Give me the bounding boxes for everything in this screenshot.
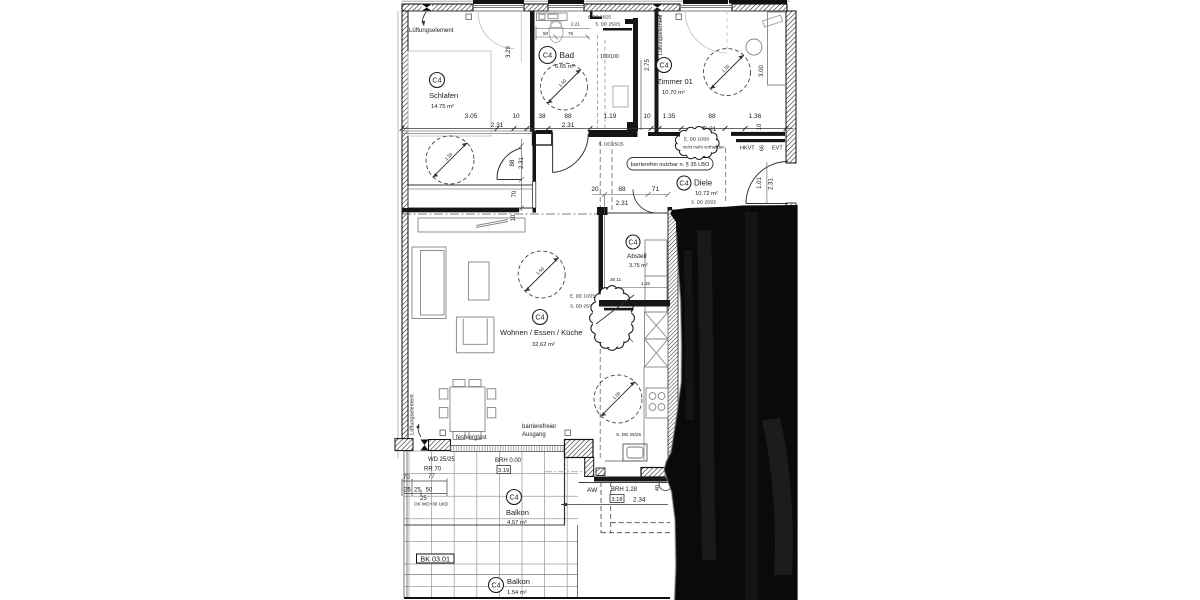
svg-text:4.57 m²: 4.57 m² bbox=[507, 520, 527, 526]
svg-text:26 11: 26 11 bbox=[610, 277, 622, 282]
svg-text:Ausgang: Ausgang bbox=[522, 432, 546, 438]
svg-text:OK WD+30 UKD: OK WD+30 UKD bbox=[414, 502, 449, 507]
svg-text:88: 88 bbox=[564, 113, 572, 120]
svg-text:WD 25/25: WD 25/25 bbox=[428, 457, 455, 463]
svg-text:5. DD 25/25: 5. DD 25/25 bbox=[596, 22, 621, 27]
svg-text:Diele: Diele bbox=[694, 179, 713, 188]
svg-text:S. DD 25/25: S. DD 25/25 bbox=[616, 432, 641, 437]
svg-text:10: 10 bbox=[643, 113, 651, 120]
svg-text:3.18: 3.18 bbox=[611, 497, 622, 503]
svg-text:10: 10 bbox=[512, 113, 520, 120]
svg-text:C4: C4 bbox=[509, 493, 518, 502]
svg-text:2.31: 2.31 bbox=[519, 157, 525, 169]
svg-text:C4: C4 bbox=[628, 238, 637, 247]
svg-text:Lüftungselement: Lüftungselement bbox=[409, 28, 454, 34]
svg-text:RR 70: RR 70 bbox=[424, 467, 442, 473]
svg-text:66: 66 bbox=[760, 145, 766, 151]
svg-text:5. DD 25/25: 5. DD 25/25 bbox=[599, 142, 624, 147]
svg-text:Bad: Bad bbox=[560, 51, 575, 60]
svg-text:Lüftungselement: Lüftungselement bbox=[410, 394, 416, 435]
svg-text:10: 10 bbox=[757, 123, 763, 130]
svg-text:14.75 m²: 14.75 m² bbox=[431, 104, 454, 110]
svg-text:C4: C4 bbox=[659, 61, 668, 70]
svg-text:BRH 0.00: BRH 0.00 bbox=[495, 458, 522, 464]
svg-text:10.70 m²: 10.70 m² bbox=[662, 90, 685, 96]
svg-text:70: 70 bbox=[512, 190, 518, 197]
svg-text:88: 88 bbox=[510, 159, 516, 166]
svg-text:2.75: 2.75 bbox=[645, 59, 651, 71]
svg-text:1.35: 1.35 bbox=[663, 113, 676, 120]
svg-text:32.62 m²: 32.62 m² bbox=[532, 342, 555, 348]
svg-text:1.15: 1.15 bbox=[641, 281, 650, 286]
svg-text:barrierefrei nutzbar n. § 35 L: barrierefrei nutzbar n. § 35 LBO bbox=[631, 162, 710, 168]
svg-text:Balkon: Balkon bbox=[506, 508, 529, 517]
svg-text:70: 70 bbox=[403, 475, 410, 481]
svg-text:E. DD 10/30: E. DD 10/30 bbox=[684, 137, 709, 142]
svg-text:38: 38 bbox=[538, 113, 546, 120]
svg-text:Wohnen / Essen / Küche: Wohnen / Essen / Küche bbox=[500, 328, 582, 337]
svg-text:3.05: 3.05 bbox=[465, 113, 478, 120]
svg-text:festverglast: festverglast bbox=[456, 435, 487, 441]
svg-text:2.34: 2.34 bbox=[633, 497, 646, 504]
svg-text:E. DD 10/25: E. DD 10/25 bbox=[570, 294, 595, 299]
svg-text:barrierefreier: barrierefreier bbox=[522, 424, 556, 430]
svg-text:88: 88 bbox=[708, 113, 716, 120]
svg-text:2.31: 2.31 bbox=[616, 200, 629, 207]
svg-text:Balkon: Balkon bbox=[507, 577, 530, 586]
svg-text:77: 77 bbox=[428, 474, 435, 480]
svg-text:2.21: 2.21 bbox=[571, 22, 580, 27]
svg-text:C4: C4 bbox=[679, 179, 688, 188]
svg-text:C4: C4 bbox=[491, 581, 500, 590]
svg-text:10.72 m²: 10.72 m² bbox=[695, 191, 718, 197]
svg-text:AW: AW bbox=[587, 487, 598, 494]
svg-text:76: 76 bbox=[568, 31, 574, 36]
svg-text:100/100: 100/100 bbox=[600, 54, 619, 60]
svg-text:1.01: 1.01 bbox=[757, 177, 763, 189]
svg-text:1.36: 1.36 bbox=[749, 113, 762, 120]
svg-text:C4: C4 bbox=[535, 313, 544, 322]
svg-text:EVT: EVT bbox=[772, 146, 783, 152]
svg-text:71: 71 bbox=[652, 186, 660, 193]
svg-text:BRH 1.28: BRH 1.28 bbox=[611, 487, 638, 493]
svg-text:Lüftungselement: Lüftungselement bbox=[658, 14, 664, 55]
svg-text:10: 10 bbox=[511, 214, 517, 221]
svg-text:Zimmer 01: Zimmer 01 bbox=[657, 77, 693, 86]
svg-text:HKVT: HKVT bbox=[740, 146, 755, 152]
svg-text:2.31: 2.31 bbox=[491, 122, 504, 129]
svg-text:2.31: 2.31 bbox=[769, 178, 775, 190]
svg-text:S. DD 25/25: S. DD 25/25 bbox=[691, 200, 716, 205]
svg-text:2.31: 2.31 bbox=[562, 122, 575, 129]
svg-text:6.65 m²: 6.65 m² bbox=[555, 64, 575, 70]
svg-text:3.00: 3.00 bbox=[759, 65, 765, 77]
svg-text:C4: C4 bbox=[543, 51, 552, 60]
svg-text:3.19: 3.19 bbox=[498, 468, 509, 474]
svg-text:50: 50 bbox=[543, 31, 549, 36]
svg-text:nicht mehr vorhanden: nicht mehr vorhanden bbox=[683, 145, 725, 150]
svg-text:Abstell: Abstell bbox=[627, 253, 647, 260]
svg-text:20: 20 bbox=[591, 186, 599, 193]
svg-text:1.19: 1.19 bbox=[604, 113, 617, 120]
svg-text:1.54 m²: 1.54 m² bbox=[507, 590, 527, 596]
svg-text:C4: C4 bbox=[432, 76, 441, 85]
svg-text:Schlafen: Schlafen bbox=[429, 91, 458, 100]
svg-text:BK 03.01: BK 03.01 bbox=[420, 554, 450, 563]
svg-text:3.75 m²: 3.75 m² bbox=[629, 263, 648, 269]
svg-text:3.29: 3.29 bbox=[506, 46, 512, 58]
svg-text:25 25 50: 25 25 50 bbox=[404, 488, 433, 494]
svg-text:88: 88 bbox=[618, 186, 626, 193]
svg-text:S. DD 25/1: S. DD 25/1 bbox=[570, 304, 593, 309]
